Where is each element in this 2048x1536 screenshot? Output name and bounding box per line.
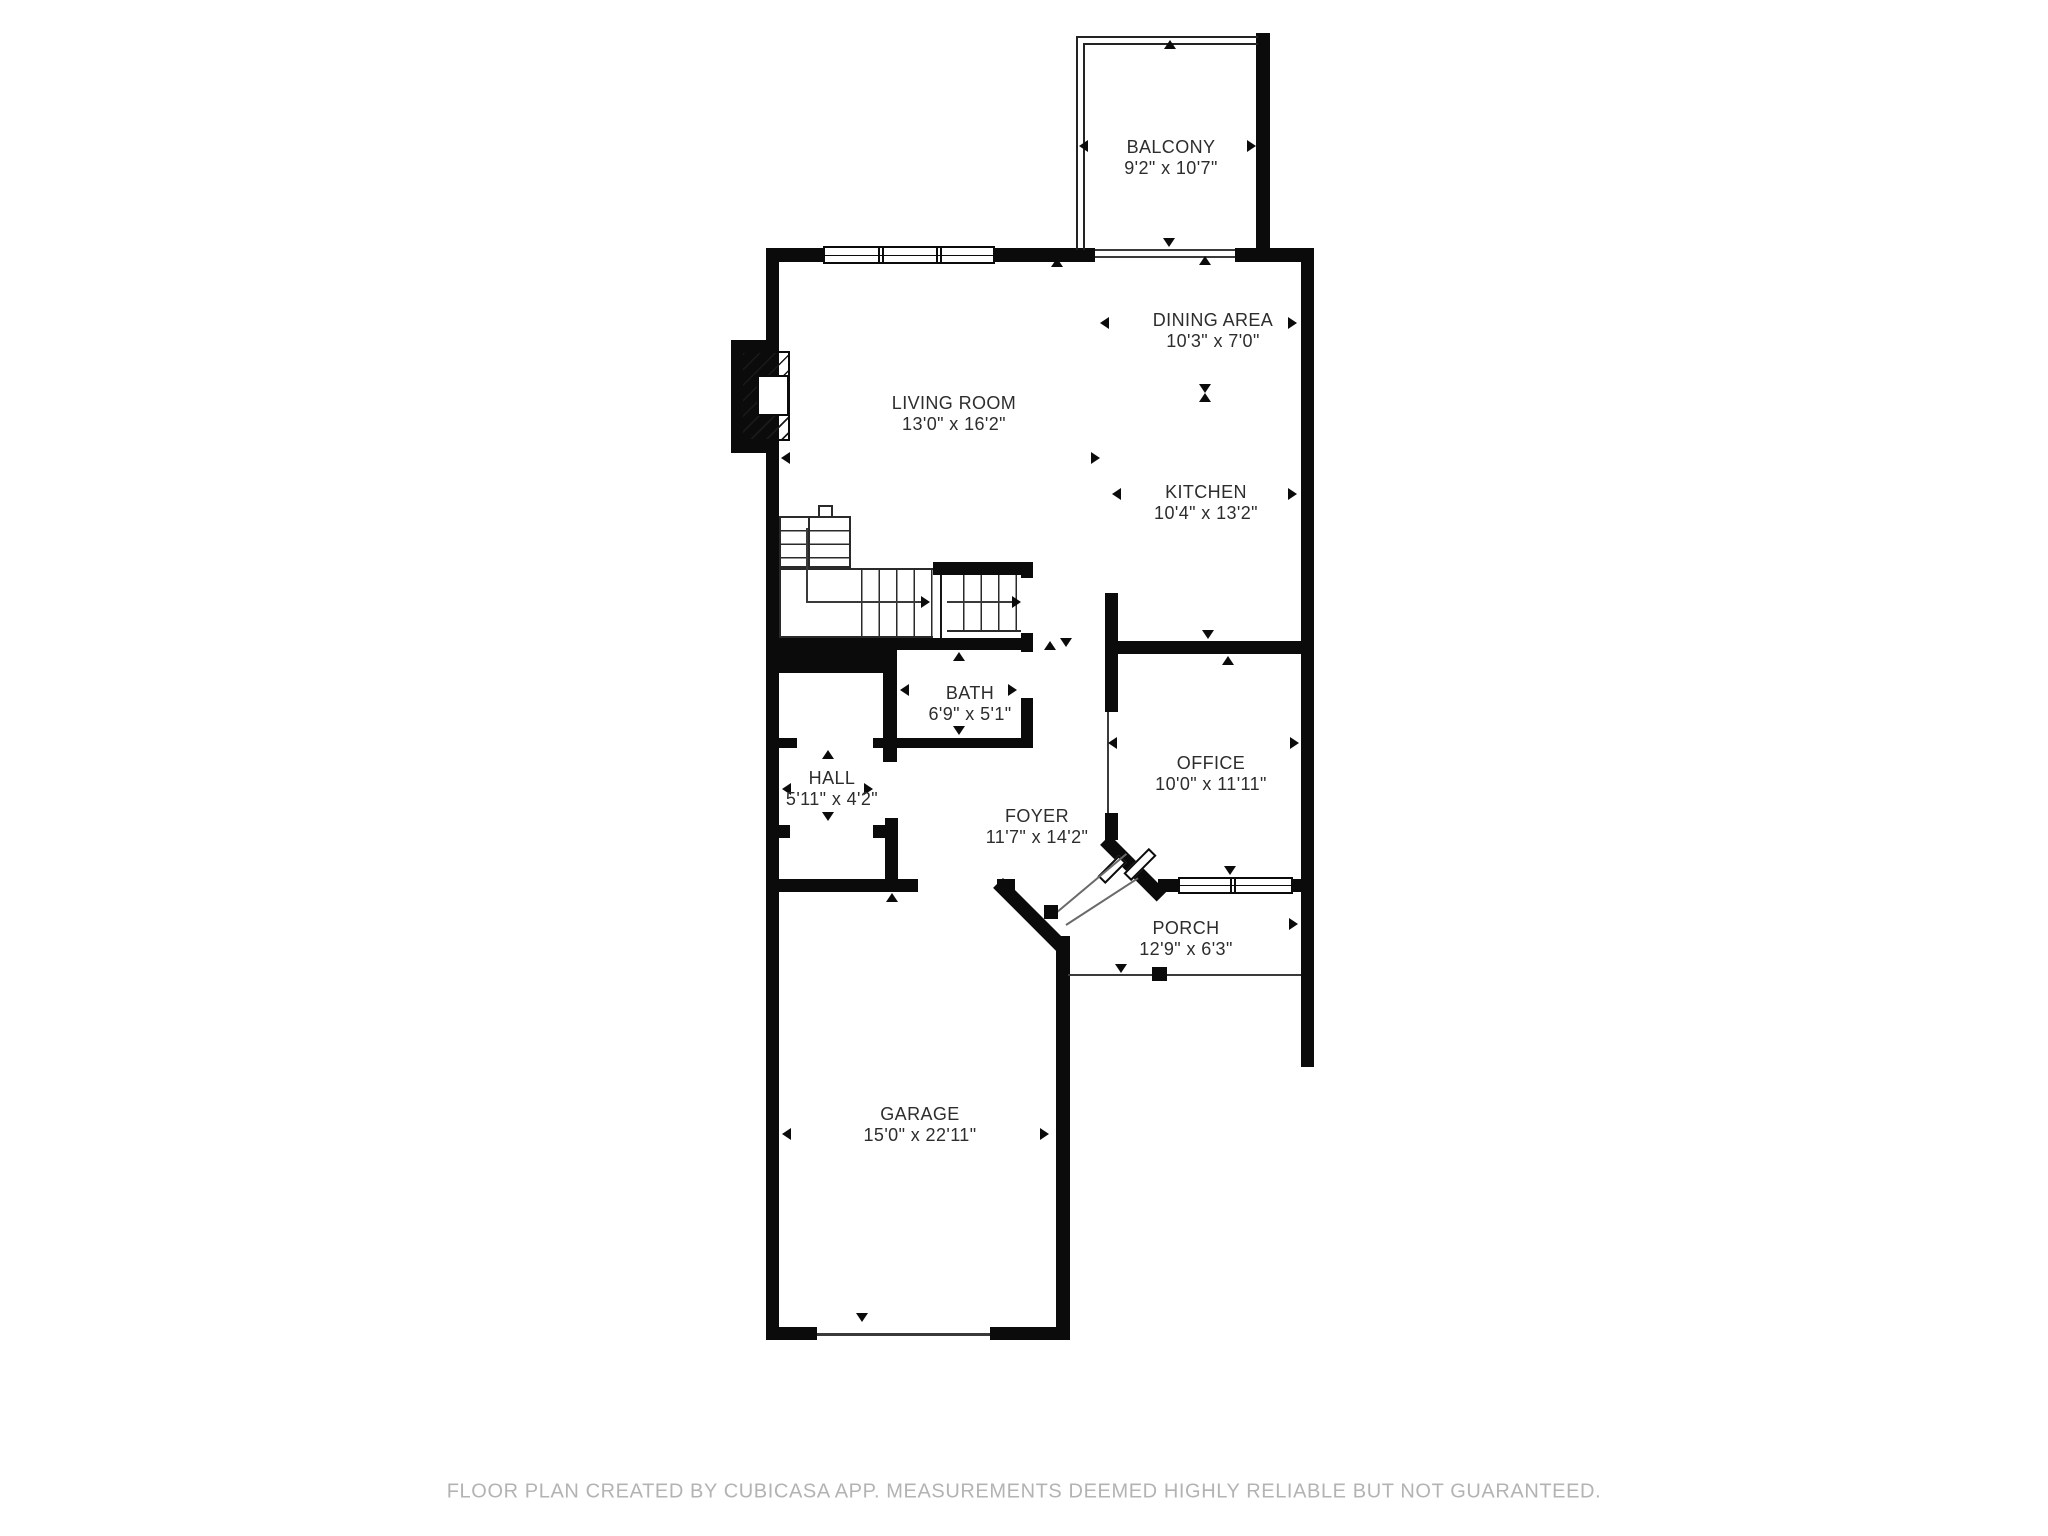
room-name: GARAGE [864, 1104, 977, 1125]
wall-bath-top [893, 638, 1033, 650]
room-label-kitchen: KITCHEN 10'4" x 13'2" [1154, 482, 1258, 524]
office-door-leaf [1107, 712, 1109, 813]
arrow-down [953, 726, 965, 735]
room-dimensions: 11'7" x 14'2" [986, 827, 1089, 848]
room-label-foyer: FOYER 11'7" x 14'2" [986, 806, 1089, 848]
room-label-garage: GARAGE 15'0" x 22'11" [864, 1104, 977, 1146]
arrow-down [856, 1313, 868, 1322]
wall-stairs-cap [933, 562, 1033, 575]
room-name: PORCH [1139, 918, 1233, 939]
arrow-right [1040, 1128, 1049, 1140]
arrow-down [1115, 964, 1127, 973]
footer-disclaimer: FLOOR PLAN CREATED BY CUBICASA APP. MEAS… [447, 1481, 1602, 1504]
wall-garage-bottom-r [990, 1327, 1070, 1340]
arrow-right [1091, 452, 1100, 464]
stairs-treads-left [845, 568, 933, 638]
room-label-hall: HALL 5'11" x 4'2" [786, 768, 878, 810]
stairs-direction-arrow [1012, 596, 1021, 608]
arrow-up [886, 893, 898, 902]
wall-bath-bottom [873, 738, 1033, 748]
arrow-left [781, 452, 790, 464]
room-dimensions: 6'9" x 5'1" [928, 704, 1011, 725]
room-name: KITCHEN [1154, 482, 1258, 503]
wall-garage-right [1056, 936, 1070, 1340]
room-dimensions: 5'11" x 4'2" [786, 789, 878, 810]
wall-office-bottom-r [1291, 879, 1314, 892]
wall-balcony-right [1256, 33, 1270, 252]
arrow-up [1199, 256, 1211, 265]
room-dimensions: 13'0" x 16'2" [892, 414, 1016, 435]
room-dimensions: 10'4" x 13'2" [1154, 503, 1258, 524]
stairs-flight-split [940, 568, 942, 638]
wall-office-bottom-l [1158, 879, 1180, 892]
wall-hall-bottom-l [766, 825, 790, 838]
stairs-divider [808, 518, 810, 566]
fireplace-firebox [757, 375, 789, 416]
room-label-bath: BATH 6'9" x 5'1" [928, 683, 1011, 725]
arrow-right [1288, 317, 1297, 329]
stairs-direction-arrow [921, 596, 930, 608]
wall-stairs-right-a [1021, 562, 1033, 578]
porch-post [1152, 967, 1167, 981]
wall-understairs [766, 638, 893, 673]
arrow-down [1060, 638, 1072, 647]
entry-door-leaf [1098, 855, 1127, 884]
arrow-up [1222, 656, 1234, 665]
room-name: DINING AREA [1153, 310, 1273, 331]
room-name: BALCONY [1124, 137, 1218, 158]
entry-door-swing [1055, 853, 1127, 914]
room-dimensions: 15'0" x 22'11" [864, 1125, 977, 1146]
wall-hall-bottom-r [873, 825, 898, 838]
arrow-left [1108, 737, 1117, 749]
stairs-arrow-shaft-h2 [947, 601, 1014, 603]
arrow-left [900, 684, 909, 696]
arrow-down [1202, 630, 1214, 639]
entry-door-swing [1065, 877, 1138, 926]
arrow-right [1288, 488, 1297, 500]
arrow-down [1199, 384, 1211, 393]
arrow-right [1247, 140, 1256, 152]
room-label-porch: PORCH 12'9" x 6'3" [1139, 918, 1233, 960]
stairs-upper-flight [779, 516, 851, 568]
room-name: BATH [928, 683, 1011, 704]
room-label-balcony: BALCONY 9'2" x 10'7" [1124, 137, 1218, 179]
room-label-office: OFFICE 10'0" x 11'11" [1155, 753, 1267, 795]
arrow-up [1044, 641, 1056, 650]
stairs-landing [779, 568, 845, 638]
arrow-up [1199, 393, 1211, 402]
stairs-treads-right [947, 575, 1021, 632]
window-glass-line [825, 255, 993, 256]
arrow-left [1112, 488, 1121, 500]
stairs-arrow-shaft-v [806, 528, 808, 603]
room-name: LIVING ROOM [892, 393, 1016, 414]
arrow-up [1164, 40, 1176, 49]
window-glass-line [1180, 885, 1291, 886]
wall-garage-bottom-l [766, 1327, 817, 1340]
wall-top-a [766, 248, 826, 262]
arrow-down [1163, 238, 1175, 247]
room-label-dining: DINING AREA 10'3" x 7'0" [1153, 310, 1273, 352]
arrow-down [822, 812, 834, 821]
window-office [1178, 877, 1293, 894]
room-name: OFFICE [1155, 753, 1267, 774]
arrow-up [1051, 258, 1063, 267]
room-dimensions: 9'2" x 10'7" [1124, 158, 1218, 179]
arrow-up [953, 652, 965, 661]
wall-top-b [995, 248, 1095, 262]
room-name: HALL [786, 768, 878, 789]
arrow-left [1100, 317, 1109, 329]
balcony-door-track-bot [1095, 256, 1235, 258]
arrow-right [1290, 737, 1299, 749]
wall-kitchen-office [1105, 641, 1314, 654]
porch-edge-line [1068, 974, 1301, 976]
entry-door-stop [1044, 905, 1058, 919]
room-label-living: LIVING ROOM 13'0" x 16'2" [892, 393, 1016, 435]
arrow-up [822, 750, 834, 759]
wall-hall-top-stub [779, 738, 797, 748]
balcony-door-track-top [1095, 249, 1235, 251]
stairs-arrow-shaft-h1 [807, 601, 923, 603]
arrow-left [782, 1128, 791, 1140]
garage-door-line [817, 1333, 990, 1336]
room-name: FOYER [986, 806, 1089, 827]
room-dimensions: 10'0" x 11'11" [1155, 774, 1267, 795]
room-dimensions: 12'9" x 6'3" [1139, 939, 1233, 960]
floor-plan: BALCONY 9'2" x 10'7" DINING AREA 10'3" x… [0, 0, 2048, 1536]
arrow-left [1079, 140, 1088, 152]
arrow-down [1224, 866, 1236, 875]
arrow-right [1289, 918, 1298, 930]
window-living-room [823, 246, 995, 264]
wall-garage-top [766, 879, 918, 892]
stairs-stringer-notch [818, 505, 833, 518]
room-dimensions: 10'3" x 7'0" [1153, 331, 1273, 352]
wall-right-exterior [1301, 248, 1314, 1067]
